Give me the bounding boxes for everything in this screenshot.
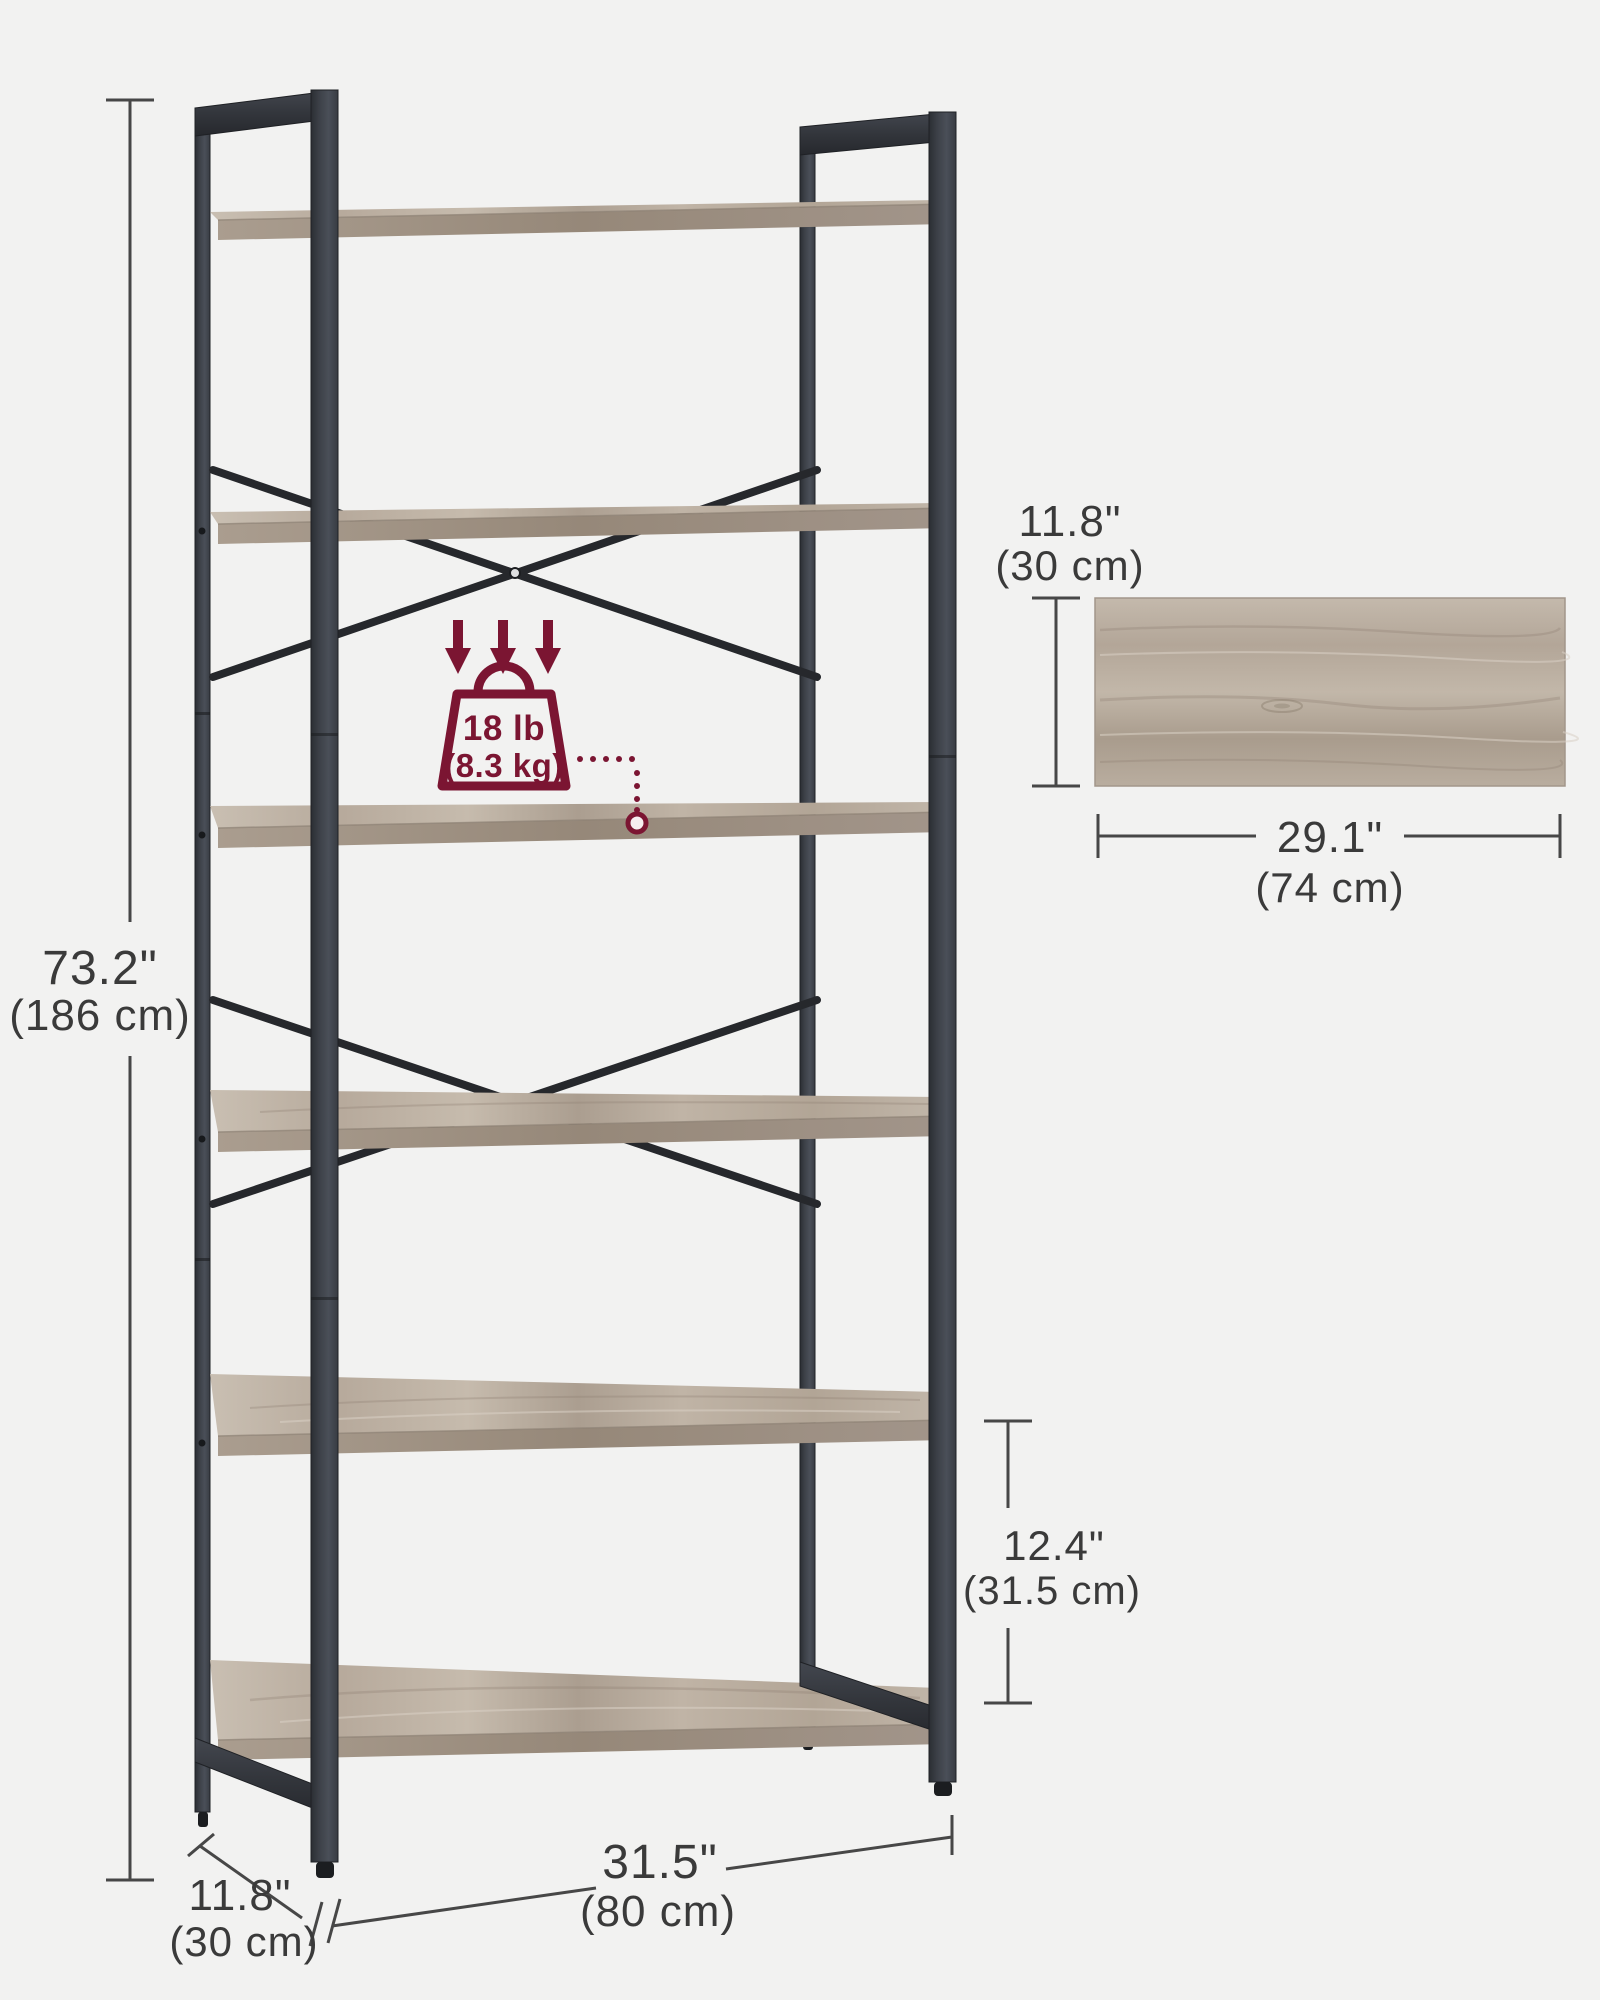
panel-width-cm-label: (74 cm) [1255, 864, 1404, 911]
load-capacity-pounds: 18 lb [463, 709, 545, 748]
bookshelf-illustration [195, 90, 956, 1878]
tier-spacing-cm-label: (31.5 cm) [963, 1569, 1141, 1613]
height-inches-label: 73.2" [42, 942, 157, 995]
width-inches-label: 31.5" [602, 1836, 717, 1889]
panel-width-dimension: 29.1" (74 cm) [1098, 813, 1560, 911]
height-cm-label: (186 cm) [9, 991, 191, 1040]
post-seam [311, 733, 338, 736]
depth-dimension: 11.8" (30 cm) [169, 1834, 318, 1965]
panel-depth-inches-label: 11.8" [1019, 497, 1122, 546]
post-seam [929, 755, 956, 758]
post-seam [195, 712, 210, 715]
front-left-post [311, 90, 338, 1862]
back-left-foot [198, 1812, 208, 1827]
panel-depth-cm-label: (30 cm) [995, 542, 1144, 589]
load-capacity-badge: 18 lb (8.3 kg) [442, 620, 646, 832]
back-left-post [195, 108, 210, 1812]
height-dimension: 73.2" (186 cm) [9, 100, 191, 1880]
brace-bolt [510, 568, 520, 578]
depth-inches-label: 11.8" [189, 1871, 292, 1920]
pointer-ring-icon [628, 814, 646, 832]
panel-width-inches-label: 29.1" [1277, 813, 1383, 862]
shelf-panel-detail: 11.8" (30 cm) 29.1" (74 cm) [995, 497, 1578, 911]
front-right-post [929, 112, 956, 1782]
tier-spacing-dimension: 12.4" (31.5 cm) [963, 1421, 1141, 1703]
front-right-foot [934, 1782, 952, 1796]
width-cm-label: (80 cm) [580, 1887, 736, 1936]
tier-spacing-inches-label: 12.4" [1003, 1522, 1105, 1569]
width-dimension: 31.5" (80 cm) [310, 1815, 952, 1946]
post-seam [195, 1258, 210, 1261]
post-seam [311, 1297, 338, 1300]
front-left-foot [316, 1862, 334, 1878]
product-dimension-diagram: 18 lb (8.3 kg) 73.2" (186 cm) [0, 0, 1600, 2000]
depth-cm-label: (30 cm) [169, 1918, 318, 1965]
load-capacity-kilograms: (8.3 kg) [444, 747, 564, 784]
diagram-canvas: 18 lb (8.3 kg) 73.2" (186 cm) [0, 0, 1600, 2000]
back-right-post [800, 127, 815, 1737]
upper-x-brace [213, 470, 817, 677]
